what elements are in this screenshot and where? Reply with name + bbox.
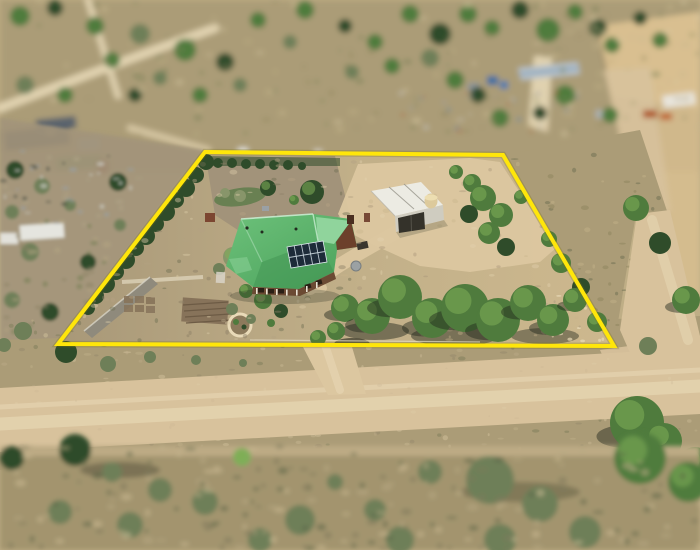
speckle [182,354,184,356]
speckle [511,158,519,160]
speckle [199,71,204,75]
speckle [443,435,448,440]
speckle [608,282,611,285]
road-fade [0,446,700,456]
speckle [548,174,554,178]
speckle [14,516,23,520]
speckle [550,105,554,106]
speckle [424,126,429,129]
speckle [253,487,259,491]
tree-canopy-highlight [382,278,406,302]
tree-canopy-highlight [261,181,270,190]
speckle [75,508,80,511]
tree-canopy [421,49,439,67]
speckle [452,357,455,360]
tree-canopy [86,17,104,35]
speckle [407,387,410,390]
speckle [619,243,626,245]
speckle [380,475,387,479]
speckle [513,427,518,430]
speckle [613,221,618,224]
speckle [488,433,490,436]
speckle [592,363,597,365]
speckle [374,368,378,370]
speckle [598,339,601,342]
veranda-post-3 [276,289,278,295]
speckle [534,101,539,103]
speckle [342,323,345,325]
aerial-photo [0,0,700,550]
speckle [578,268,581,270]
speckle [334,169,339,173]
speckle [629,84,635,86]
tree-canopy [16,76,34,94]
speckle [695,430,698,432]
speckle [591,25,599,30]
speckle [623,117,628,119]
speckle [663,42,672,46]
speckle [177,453,181,458]
speckle [472,61,476,66]
speckle [307,498,316,503]
speckle [325,122,328,126]
water-tank [351,261,361,271]
speckle [502,407,506,409]
speckle [84,353,92,356]
tree-canopy-highlight [618,436,647,465]
speckle [420,354,422,357]
tree-canopy [192,87,208,103]
speckle [296,441,302,444]
speckle [274,70,277,74]
tree-canopy-highlight [480,301,504,325]
speckle [288,178,296,181]
tree-canopy [144,351,156,363]
blue-container-2 [500,81,508,89]
tree-canopy [652,32,668,48]
tree-canopy [153,71,167,85]
tree-canopy-highlight [513,288,533,308]
speckle [112,492,117,495]
speckle [575,97,579,99]
speckle [244,40,252,43]
speckle [96,529,104,534]
speckle [497,496,509,500]
tree-canopy-highlight [491,205,504,218]
speckle [16,233,21,239]
speckle [86,282,94,288]
speckle [302,525,309,531]
speckle [559,487,569,492]
speckle [543,108,545,111]
speckle [403,88,409,92]
tree-canopy-highlight [565,290,578,303]
speckle [377,237,384,241]
speckle [348,196,354,198]
speckle [304,79,310,81]
speckle [631,102,636,104]
speckle [446,64,449,67]
speckle [221,163,227,165]
speckle [55,539,64,544]
speckle [264,437,270,439]
speckle [144,263,151,265]
speckle [455,467,460,473]
speckle [494,457,504,463]
speckle [156,230,162,232]
speckle [602,373,608,376]
speckle [110,307,116,311]
speckle [160,445,165,448]
speckle [175,198,181,203]
speckle [541,2,545,8]
speckle [551,54,559,58]
tree-canopy [338,19,352,33]
speckle [574,34,583,40]
tree-canopy [250,12,266,28]
speckle [532,429,540,432]
speckle [256,466,262,472]
speckle [43,514,51,518]
speckle [100,204,105,209]
speckle [532,545,542,549]
speckle [399,522,405,527]
speckle [283,489,290,493]
speckle [180,542,189,546]
speckle [388,503,394,506]
speckle [616,453,627,456]
speckle [221,28,226,32]
speckle [453,200,458,203]
speckle [193,270,198,273]
speckle [380,270,382,275]
speckle [561,131,568,137]
speckle [532,264,539,268]
speckle [414,104,419,106]
speckle [225,321,230,324]
speckle [4,195,6,200]
speckle [507,103,510,106]
shed-door-line [411,215,412,231]
speckle [198,228,206,233]
speckle [351,160,357,164]
speckle [567,103,574,108]
speckle [136,88,144,92]
speckle [482,443,487,445]
tree-canopy [100,356,116,372]
speckle [105,60,112,64]
speckle [314,80,319,84]
speckle [139,360,143,363]
speckle [15,480,26,487]
tree-canopy [497,238,515,256]
tree-canopy [0,446,24,470]
speckle [116,200,123,204]
speckle [92,521,102,528]
speckle [581,205,589,210]
tree-canopy [234,190,246,202]
tree-canopy [148,478,172,502]
speckle [524,255,528,257]
speckle [593,43,602,49]
speckle [348,54,355,58]
speckle [261,484,266,488]
speckle [19,444,25,446]
speckle [6,192,13,194]
speckle [356,229,363,233]
speckle [451,485,455,492]
speckle [112,178,120,180]
speckle [338,265,345,269]
speckle [435,527,442,532]
speckle [630,35,635,40]
speckle [591,153,597,157]
speckle [295,360,302,362]
speckle [62,162,65,164]
speckle [560,98,570,100]
speckle [145,529,149,534]
speckle [554,457,561,461]
speckle [222,64,229,67]
speckle [142,537,153,544]
speckle [37,24,42,27]
speckle [75,400,77,403]
speckle [481,126,483,129]
speckle [220,506,228,512]
speckle [92,3,100,6]
speckle [184,211,188,213]
speckle [573,540,583,544]
speckle [147,461,152,464]
speckle [498,438,504,440]
speckle [274,311,281,313]
speckle [318,546,326,549]
speckle [679,72,687,77]
speckle [107,155,111,157]
speckle [562,112,572,116]
speckle [641,55,646,61]
speckle [389,393,393,394]
speckle [182,239,186,242]
speckle [608,446,617,452]
speckle [514,417,519,419]
white-shed-left-2 [0,233,18,244]
speckle [572,168,576,173]
speckle [176,80,183,86]
speckle [12,298,19,301]
speckle [484,97,490,99]
speckle [92,472,103,479]
speckle [527,123,535,128]
speckle [585,369,588,373]
speckle [356,127,359,129]
speckle [69,167,77,172]
speckle [225,330,229,335]
speckle [532,531,540,538]
speckle [477,468,488,472]
speckle [412,118,422,124]
speckle [405,19,407,21]
veranda-post-1 [256,288,258,294]
speckle [340,540,347,543]
tree-canopy [296,1,314,19]
tree-canopy [429,23,451,45]
speckle [351,452,358,455]
speckle [15,169,21,171]
speckle [274,507,285,512]
speckle [262,118,271,123]
tree-canopy-highlight [290,196,296,202]
speckle [607,358,610,360]
speckle [376,511,387,514]
speckle [668,377,671,380]
speckle [651,35,660,38]
speckle [516,118,522,121]
speckle [599,110,603,114]
tree-canopy [283,35,297,49]
speckle [602,265,608,269]
blurred-foreground-scrub-layer [0,432,700,550]
speckle [62,196,68,199]
speckle [307,80,310,86]
speckle [207,316,211,318]
speckle [349,110,358,114]
speckle [574,24,583,27]
roof-vent-2 [261,231,264,234]
speckle [256,51,264,54]
speckle [674,97,684,100]
speckle [419,17,428,20]
speckle [681,42,691,47]
speckle [105,321,111,323]
speckle [528,492,535,497]
speckle [87,267,93,271]
speckle [194,115,202,121]
speckle [78,210,83,214]
tree-canopy [246,314,256,324]
speckle [467,504,479,510]
speckle [409,107,413,110]
speckle [63,474,70,478]
speckle [607,319,609,321]
speckle [4,328,9,332]
orange-truck-2 [660,113,672,120]
speckle [558,451,569,454]
speckle [609,60,613,63]
speckle [614,38,624,42]
speckle [447,108,451,111]
speckle [634,190,637,193]
speckle [31,249,38,254]
speckle [183,254,191,256]
tree-canopy [102,462,122,482]
speckle [500,351,508,353]
speckle [302,485,310,489]
speckle [430,522,435,527]
speckle [276,444,284,449]
tree-canopy [226,303,238,315]
blue-container-1 [487,76,498,85]
speckle [551,201,555,204]
speckle [15,402,18,405]
speckle [348,278,351,281]
roof-vent-1 [245,226,248,229]
speckle [126,351,129,355]
speckle [683,116,686,120]
tree-canopy-highlight [311,331,320,340]
speckle [352,532,359,538]
speckle [356,78,364,84]
speckle [170,423,175,427]
tree-canopy [104,52,120,68]
speckle [151,296,157,298]
speckle [87,76,89,79]
speckle [319,100,326,103]
speckle [269,536,277,543]
speckle [580,340,585,343]
tree-canopy [602,107,618,123]
speckle [65,420,68,423]
speckle [11,470,20,473]
speckle [35,305,42,309]
speckle [632,13,638,17]
speckle [321,186,327,188]
veranda-window-1 [258,288,264,293]
speckle [446,516,458,519]
speckle [328,90,335,96]
speckle [19,243,24,249]
tree-canopy [216,53,234,71]
tree-canopy-highlight [540,306,558,324]
speckle [195,493,202,498]
speckle [667,79,671,83]
speckle [620,256,625,259]
tree-canopy [114,219,126,231]
square-bed-5 [135,305,144,312]
speckle [413,98,417,100]
speckle [247,447,257,450]
speckle [424,95,426,98]
speckle [39,544,44,550]
speckle [145,509,150,516]
speckle [37,516,43,522]
speckle [226,276,230,278]
speckle [119,206,123,210]
speckle [87,178,90,180]
speckle [638,541,650,546]
speckle [127,168,134,171]
speckle [233,476,242,479]
speckle [105,298,109,301]
tree-canopy [367,34,383,50]
speckle [144,469,152,476]
speckle [452,219,456,222]
gray-hut [262,206,269,211]
speckle [275,158,280,162]
speckle [19,348,25,351]
speckle [207,277,211,281]
speckle [82,459,87,465]
speckle [601,180,604,182]
speckle [423,276,428,278]
speckle [675,80,678,85]
speckle [324,465,330,472]
square-bed-6 [146,306,155,313]
speckle [459,190,467,192]
speckle [556,295,561,297]
speckle [215,82,223,85]
speckle [493,118,498,122]
